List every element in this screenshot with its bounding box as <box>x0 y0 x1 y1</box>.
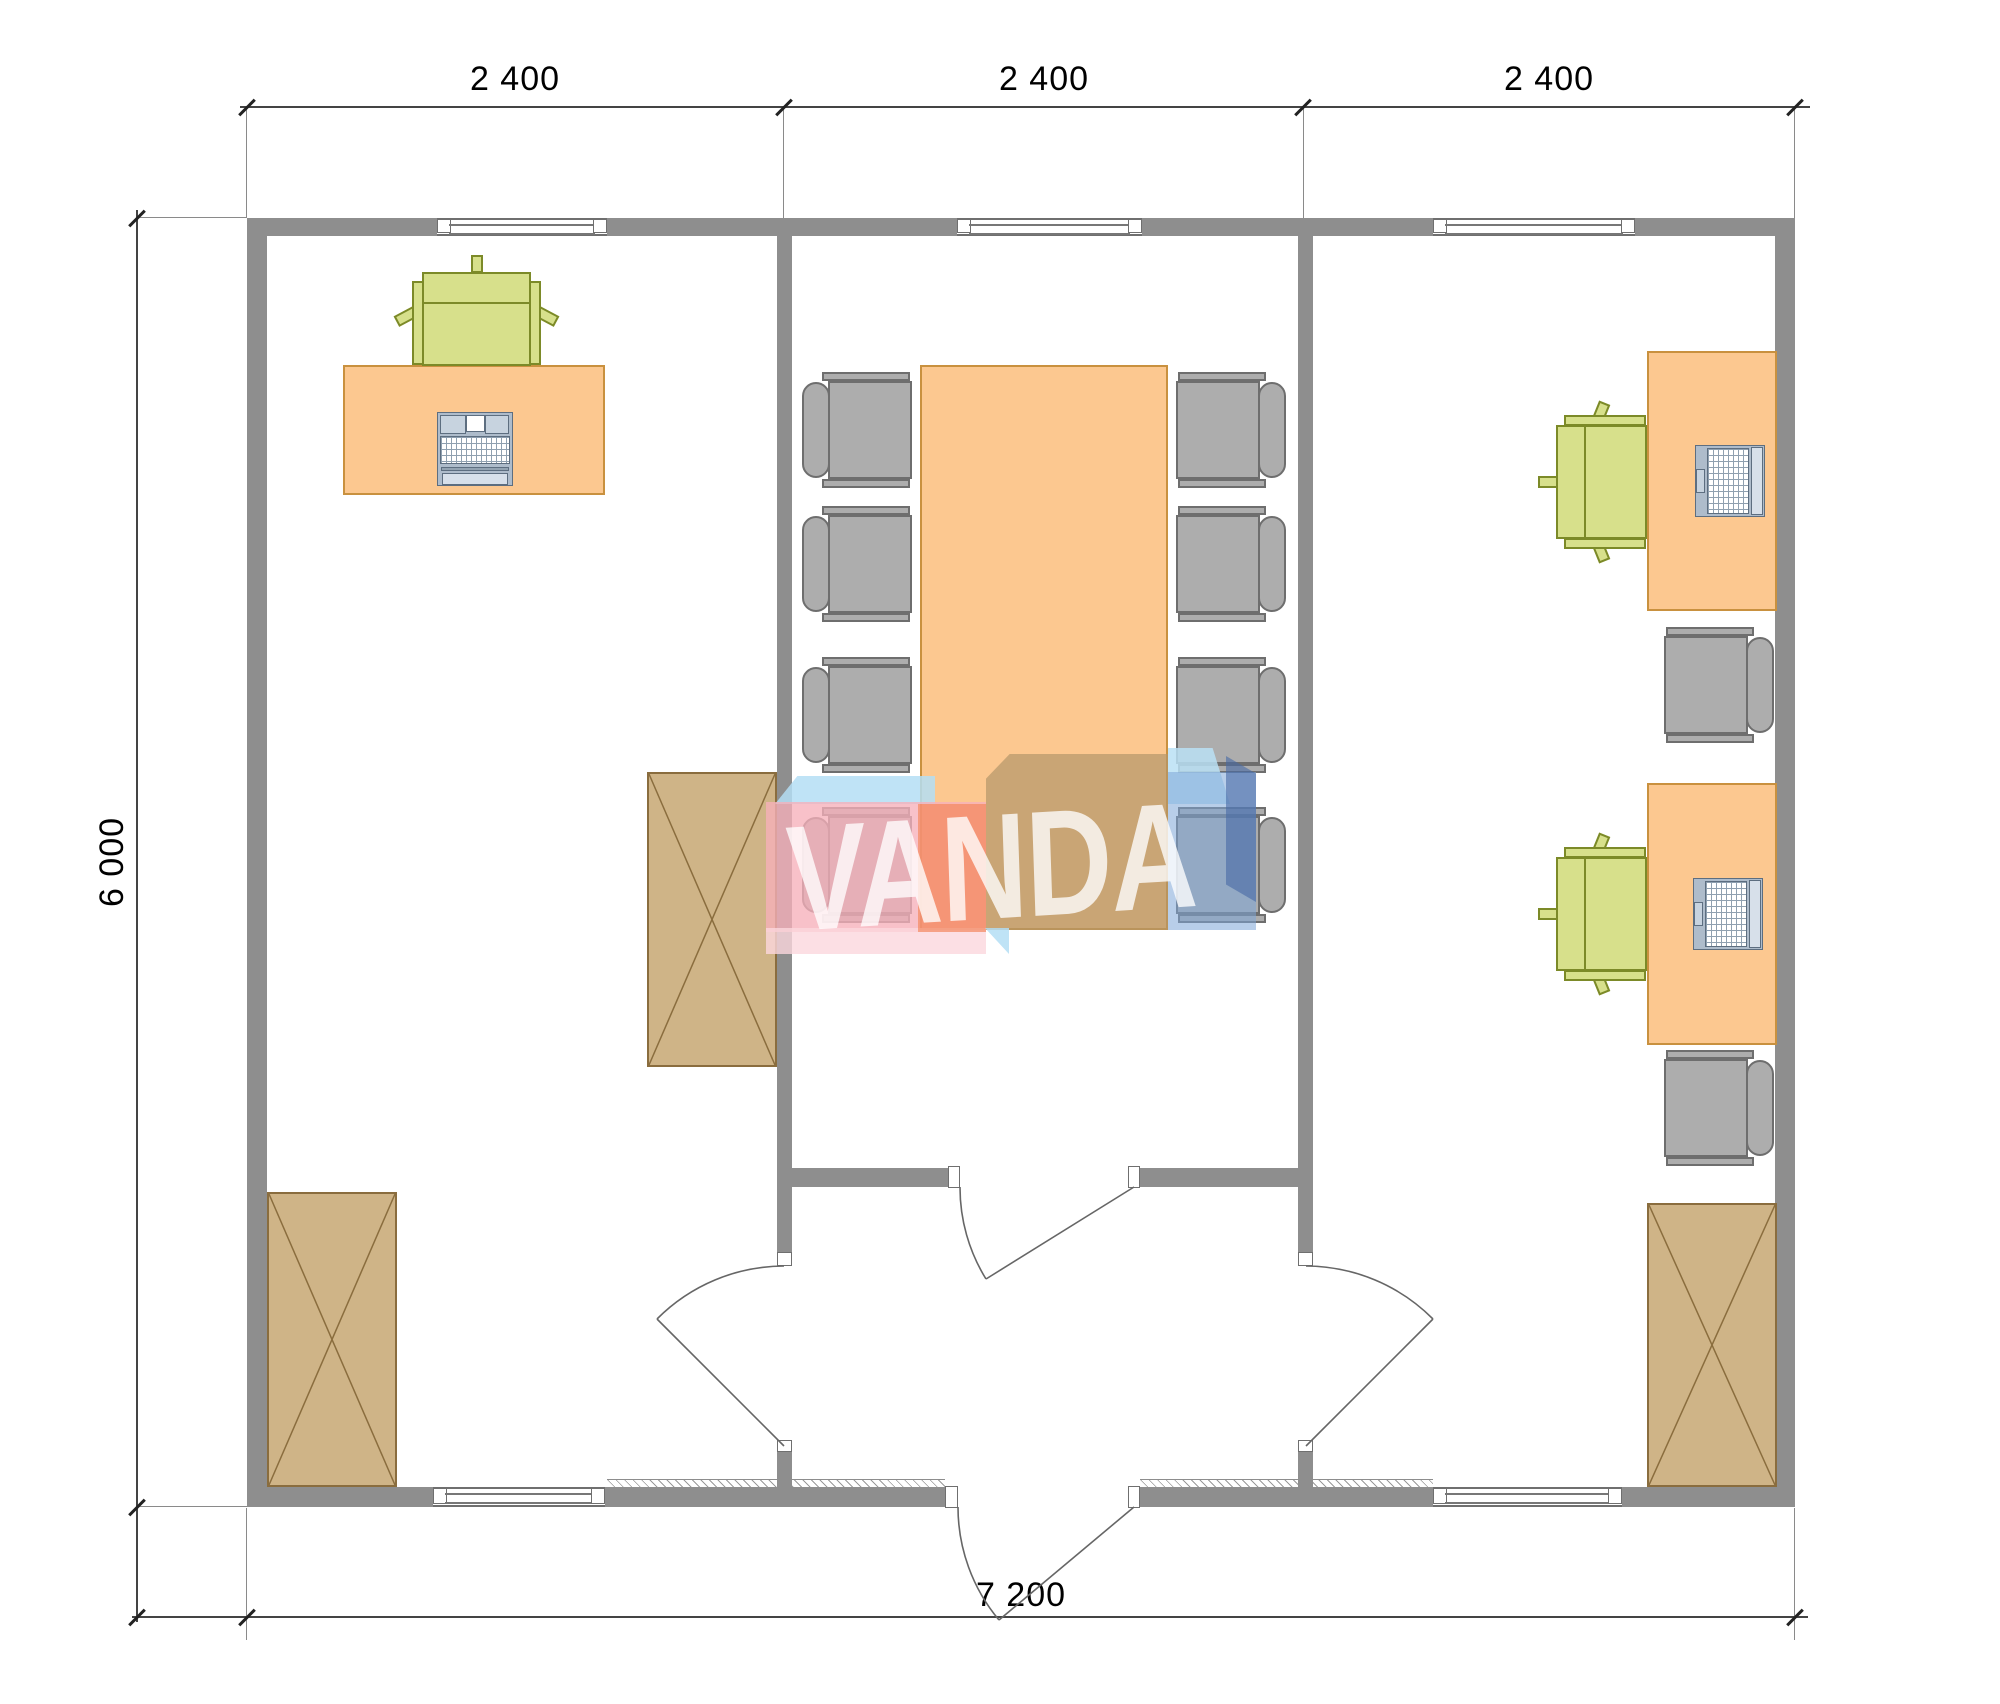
chair-leg <box>471 255 483 273</box>
dim-label-bottom: 7 200 <box>941 1578 1101 1612</box>
extension-line <box>1303 107 1304 236</box>
meeting-chair <box>802 506 918 622</box>
door-leaf-right-office <box>1306 1319 1433 1446</box>
extension-line <box>246 107 247 218</box>
wall-bottom <box>247 1487 433 1507</box>
door-arc-meeting-room <box>960 1187 986 1279</box>
wall-bottom <box>605 1487 945 1507</box>
wall-right <box>1775 218 1795 1507</box>
meeting-chair <box>802 657 918 773</box>
keyboard-workstation <box>437 412 513 486</box>
dim-label-top-2: 2 400 <box>964 62 1124 96</box>
dim-label-left: 6 000 <box>95 782 129 942</box>
extension-line <box>137 1506 247 1507</box>
chair-seat <box>422 302 531 366</box>
window-bottom-right-room <box>1433 1487 1622 1507</box>
door-jamb <box>1128 1166 1140 1188</box>
keyboard-tray <box>442 473 508 485</box>
wall-bottom <box>1622 1487 1795 1507</box>
wall-hatch-strip <box>607 1479 945 1487</box>
wall-hatch-strip <box>1140 1479 1433 1487</box>
wall-top <box>607 218 957 236</box>
wall-top <box>1635 218 1795 236</box>
window-glazing <box>1445 1493 1610 1504</box>
wall-bottom <box>1137 1487 1433 1507</box>
chair-leg <box>1538 476 1558 488</box>
door-jamb <box>945 1486 958 1508</box>
door-leaf-meeting-room <box>986 1187 1134 1279</box>
wall-hall <box>1140 1168 1298 1187</box>
door-jamb <box>1298 1440 1313 1452</box>
dim-label-top-3: 2 400 <box>1469 62 1629 96</box>
laptop <box>1693 878 1763 950</box>
desk-chair-right-office-2 <box>1538 834 1650 994</box>
logo-text: VANDA <box>784 779 1198 954</box>
dimension-line-bottom <box>132 1616 1808 1618</box>
keyboard-module <box>466 415 485 432</box>
wall-partition-1 <box>777 236 792 1252</box>
visitor-chair <box>1658 1050 1774 1166</box>
dimension-line-top <box>240 106 1810 108</box>
keyboard-module <box>440 415 466 434</box>
chair-armrest <box>822 372 910 381</box>
chair-seat <box>1584 425 1647 539</box>
window-glazing <box>969 224 1130 235</box>
keyboard-module <box>485 415 509 434</box>
meeting-chair <box>1170 506 1286 622</box>
wall-hall <box>791 1168 948 1187</box>
extension-line <box>1794 107 1795 218</box>
dim-label-top-1: 2 400 <box>435 62 595 96</box>
wall-partition-1 <box>777 1452 792 1487</box>
desk-chair-left-office <box>393 253 560 369</box>
laptop <box>1695 445 1765 517</box>
wall-top <box>247 218 437 236</box>
window-jamb <box>1128 219 1142 233</box>
storage-cabinet <box>1647 1203 1777 1487</box>
chair-armrest <box>822 479 910 488</box>
window-glazing <box>449 224 595 235</box>
door-arc-left-office <box>657 1266 784 1319</box>
window-top-meeting-room <box>957 218 1142 236</box>
meeting-chair <box>802 372 918 488</box>
extension-line <box>783 107 784 236</box>
floor-plan-canvas: 2 400 2 400 2 400 6 000 7 200 <box>0 0 2000 1704</box>
door-jamb <box>777 1252 792 1266</box>
window-glazing <box>445 1493 593 1504</box>
window-jamb <box>593 219 607 233</box>
window-top-left-room <box>437 218 607 236</box>
wall-partition-2 <box>1298 1452 1313 1487</box>
door-jamb <box>1298 1252 1313 1266</box>
dimension-line-left <box>136 210 138 1622</box>
window-jamb <box>1608 1488 1622 1504</box>
chair-backrest <box>802 382 830 478</box>
desk-chair-right-office-1 <box>1538 402 1650 562</box>
logo-shape-navy-edge <box>1226 756 1256 902</box>
wall-partition-2 <box>1298 236 1313 1252</box>
laptop-screen <box>1751 447 1763 515</box>
window-bottom-left-room <box>433 1487 605 1507</box>
window-jamb <box>1621 219 1635 233</box>
chair-armrest <box>1564 538 1646 549</box>
chair-backrest <box>1556 425 1586 539</box>
extension-line <box>137 217 247 218</box>
window-glazing <box>1445 224 1623 235</box>
storage-cabinet <box>647 772 777 1067</box>
door-jamb <box>1128 1486 1140 1508</box>
keyboard-keys <box>440 436 510 464</box>
keyboard-bar <box>441 467 509 471</box>
chair-backrest <box>422 272 531 304</box>
wall-left <box>247 218 267 1507</box>
visitor-chair <box>1658 627 1774 743</box>
door-leaf-left-office <box>657 1319 784 1446</box>
laptop-touchpad <box>1696 469 1705 493</box>
chair-seat <box>828 381 912 479</box>
meeting-chair <box>1170 372 1286 488</box>
storage-cabinet <box>267 1192 397 1487</box>
door-jamb <box>948 1166 960 1188</box>
laptop-keys <box>1707 448 1749 514</box>
window-jamb <box>591 1488 605 1504</box>
door-jamb <box>777 1440 792 1452</box>
wall-top <box>1142 218 1433 236</box>
door-arc-right-office <box>1306 1266 1433 1319</box>
window-top-right-room <box>1433 218 1635 236</box>
